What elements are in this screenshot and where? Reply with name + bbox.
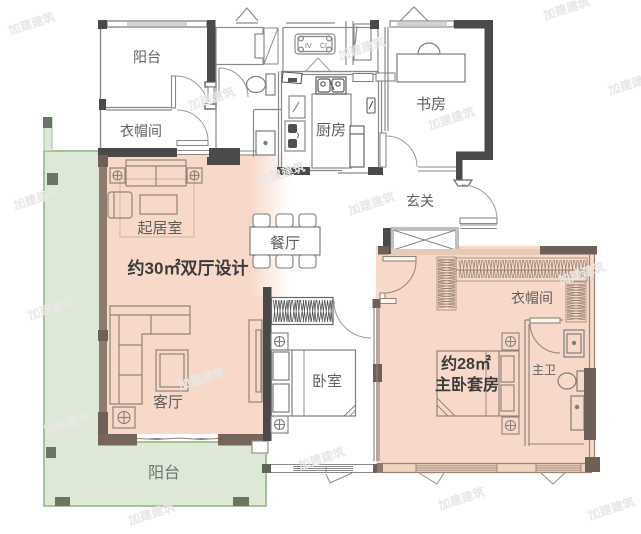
svg-text:厨房: 厨房	[316, 122, 346, 139]
svg-text:约30㎡双厅设计: 约30㎡双厅设计	[128, 258, 249, 278]
svg-text:衣帽间: 衣帽间	[511, 290, 553, 306]
svg-text:起居室: 起居室	[137, 220, 182, 237]
svg-text:CI: CI	[320, 43, 327, 50]
svg-text:IV: IV	[305, 43, 312, 50]
svg-text:卧室: 卧室	[312, 373, 342, 390]
svg-text:书房: 书房	[416, 96, 446, 113]
svg-text:玄关: 玄关	[406, 193, 434, 209]
svg-text:客厅: 客厅	[153, 394, 183, 411]
svg-text:主卫: 主卫	[532, 363, 556, 377]
svg-text:餐厅: 餐厅	[270, 235, 300, 252]
svg-text:阳台: 阳台	[148, 464, 180, 482]
svg-text:衣帽间: 衣帽间	[120, 123, 162, 139]
svg-text:约28㎡: 约28㎡	[441, 354, 491, 373]
svg-text:主卧套房: 主卧套房	[435, 375, 499, 394]
svg-text:阳台: 阳台	[133, 49, 161, 65]
